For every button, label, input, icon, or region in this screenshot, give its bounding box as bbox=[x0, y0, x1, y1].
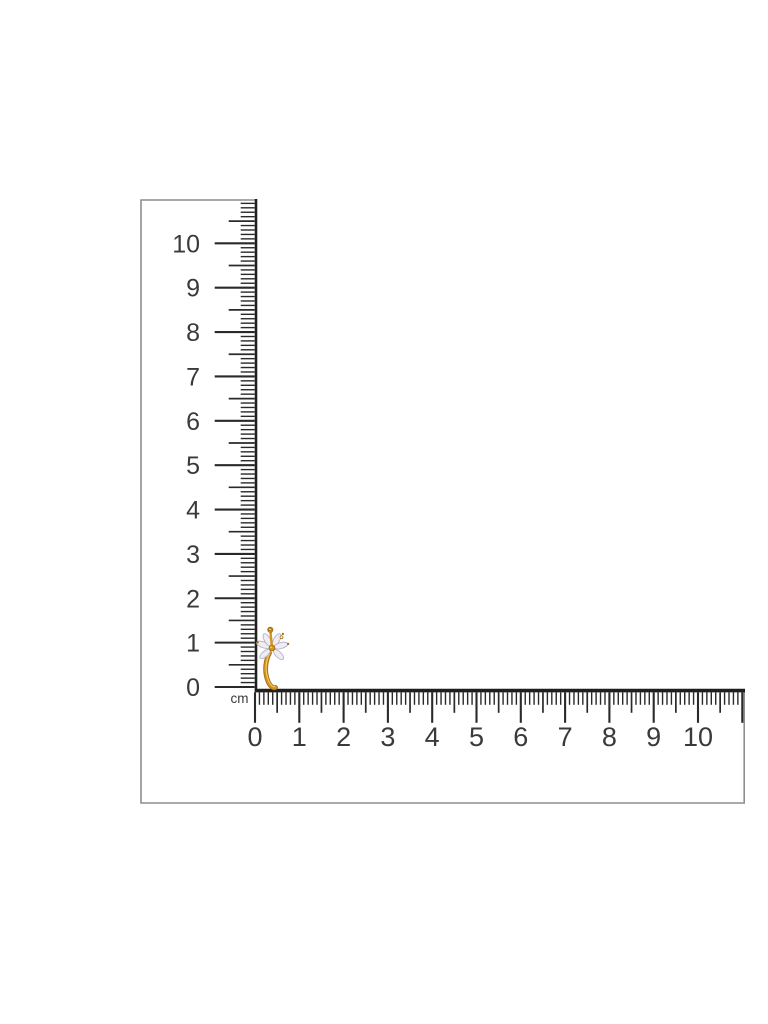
l-square-ruler: 012345678910 012345678910 cm bbox=[140, 199, 746, 805]
h-ruler-label-2: 2 bbox=[336, 722, 351, 752]
h-ruler-label-10: 10 bbox=[683, 722, 713, 752]
gold-post bbox=[266, 653, 276, 688]
h-ruler-label-3: 3 bbox=[380, 722, 395, 752]
h-ruler-label-6: 6 bbox=[513, 722, 528, 752]
h-ruler-label-7: 7 bbox=[558, 722, 573, 752]
v-ruler-label-4: 4 bbox=[186, 497, 200, 525]
v-ruler-label-2: 2 bbox=[186, 585, 200, 613]
v-ruler-label-6: 6 bbox=[186, 408, 200, 436]
prong-dot bbox=[282, 633, 284, 635]
product-photo-canvas: 012345678910 012345678910 cm bbox=[0, 0, 768, 1024]
h-ruler-label-4: 4 bbox=[425, 722, 440, 752]
h-ruler-label-1: 1 bbox=[292, 722, 307, 752]
prong-dot bbox=[257, 641, 259, 643]
prong-dot bbox=[287, 643, 289, 645]
v-ruler-label-7: 7 bbox=[186, 363, 200, 391]
v-ruler-label-5: 5 bbox=[186, 452, 200, 480]
v-ruler-label-0: 0 bbox=[186, 674, 200, 702]
h-ruler-label-9: 9 bbox=[646, 722, 661, 752]
v-ruler-label-1: 1 bbox=[186, 630, 200, 658]
h-ruler-label-5: 5 bbox=[469, 722, 484, 752]
small-stone bbox=[280, 636, 283, 639]
h-ruler-label-0: 0 bbox=[247, 722, 262, 752]
h-ruler-label-8: 8 bbox=[602, 722, 617, 752]
unit-label-cm: cm bbox=[231, 691, 249, 706]
v-ruler-label-8: 8 bbox=[186, 319, 200, 347]
v-ruler-label-9: 9 bbox=[186, 275, 200, 303]
v-ruler-label-10: 10 bbox=[172, 230, 200, 258]
v-ruler-label-3: 3 bbox=[186, 541, 200, 569]
gold-flower-stud bbox=[255, 619, 293, 692]
